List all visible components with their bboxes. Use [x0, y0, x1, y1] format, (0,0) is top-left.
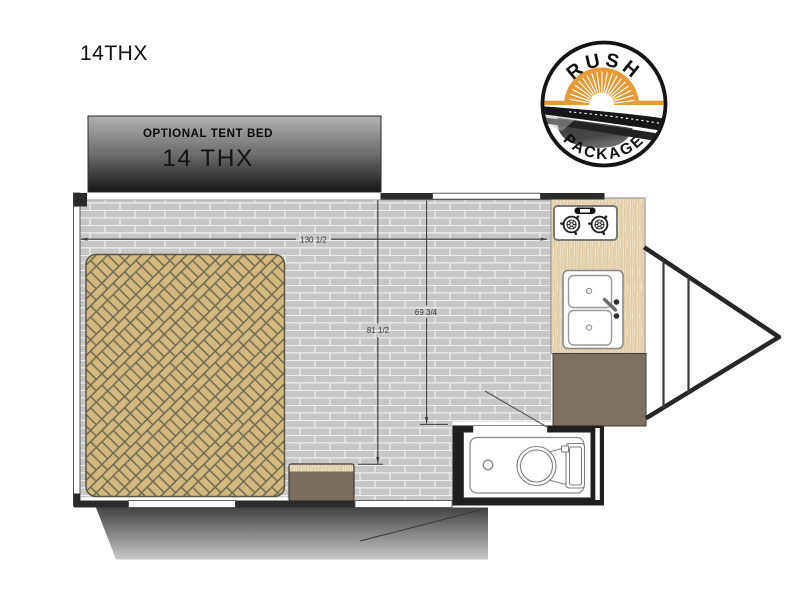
- svg-text:130 1/2: 130 1/2: [300, 236, 327, 245]
- svg-text:OPTIONAL TENT BED: OPTIONAL TENT BED: [143, 128, 273, 140]
- svg-text:81 1/2: 81 1/2: [367, 326, 390, 335]
- svg-text:14 THX: 14 THX: [162, 145, 254, 172]
- svg-text:14THX: 14THX: [80, 42, 148, 65]
- svg-text:69 3/4: 69 3/4: [415, 308, 438, 317]
